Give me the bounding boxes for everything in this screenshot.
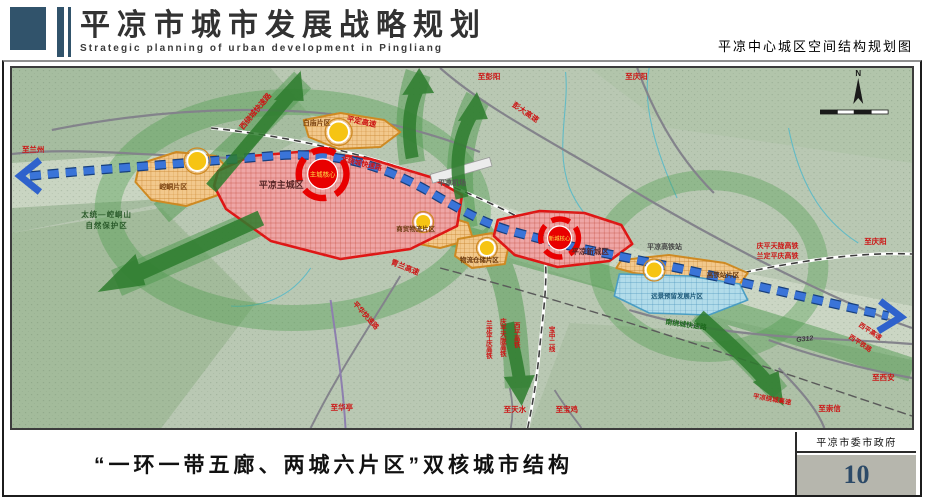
label-to-qingyang-n: 至庆阳 (625, 71, 647, 81)
header-accent-bar (57, 7, 64, 57)
content-frame: 主城核心 新城核心 (2, 60, 922, 497)
new-core-label: 新城核心 (549, 234, 571, 242)
scale-bar (820, 110, 888, 114)
label-hsr-district: 高铁站片区 (707, 270, 740, 279)
label-to-baoji: 至宝鸡 (556, 404, 579, 414)
label-baozhong: 宝中二线 (547, 325, 555, 354)
header-accent-square (10, 7, 46, 50)
label-main-city: 平凉主城区 (259, 179, 304, 190)
storage-node (479, 240, 495, 256)
map-title: 平凉中心城区空间结构规划图 (718, 36, 913, 55)
label-nature-reserve-1: 太统—崆峒山 (81, 209, 132, 219)
label-to-qingyang-e: 至庆阳 (864, 236, 886, 246)
label-to-chongxin: 至崇信 (818, 403, 841, 413)
page-title: 平凉市城市发展战略规划 (80, 10, 487, 42)
label-nature-reserve-2: 自然保护区 (85, 220, 127, 230)
baimiao-node (328, 122, 349, 143)
main-core-label: 主城核心 (310, 169, 336, 178)
page-subtitle-en: Strategic planning of urban development … (80, 43, 487, 54)
label-logistics-storage: 物流仓储片区 (460, 255, 499, 264)
planning-map: 主城核心 新城核心 (10, 66, 914, 430)
structure-caption: “一环一带五廊、两城六片区”双核城市结构 (94, 449, 573, 479)
label-to-lanzhou: 至兰州 (22, 144, 44, 154)
label-new-city: 平凉新城区 (572, 246, 610, 256)
header-title-block: 平凉市城市发展战略规划 Strategic planning of urban … (80, 10, 487, 54)
hsr-node (646, 262, 663, 279)
page-footer: “一环一带五廊、两城六片区”双核城市结构 平凉市委市政府 10 (4, 432, 920, 495)
kongtong-node (187, 151, 207, 171)
label-hsr-station: 平凉高铁站 (647, 242, 682, 251)
label-airport: 平凉机场 (438, 178, 466, 187)
north-label: N (855, 69, 861, 78)
label-ldpq-hsr: 兰定平庆高铁 (757, 251, 799, 260)
label-trade-logistics: 商贸物流片区 (396, 224, 435, 233)
planning-document-page: 平凉市城市发展战略规划 Strategic planning of urban … (0, 0, 925, 500)
label-kongtong: 崆峒片区 (159, 182, 187, 191)
label-reserved: 远景预留发展片区 (651, 291, 703, 300)
label-to-xian: 至西安 (872, 372, 895, 382)
label-qptl-hsr: 庆平天陇高铁 (756, 241, 799, 250)
label-to-tianshui: 至天水 (504, 404, 527, 414)
map-canvas: 主城核心 新城核心 (12, 68, 912, 428)
agency-name: 平凉市委市政府 (797, 432, 916, 453)
footer-right-panel: 平凉市委市政府 10 (795, 432, 916, 495)
page-number: 10 (797, 455, 916, 495)
label-to-pengyang: 至彭阳 (478, 71, 500, 81)
label-to-huating: 至华亭 (331, 402, 354, 412)
page-header: 平凉市城市发展战略规划 Strategic planning of urban … (0, 0, 925, 60)
label-baimiao: 白庙片区 (303, 118, 331, 127)
header-accent-bar-thin (68, 7, 71, 57)
